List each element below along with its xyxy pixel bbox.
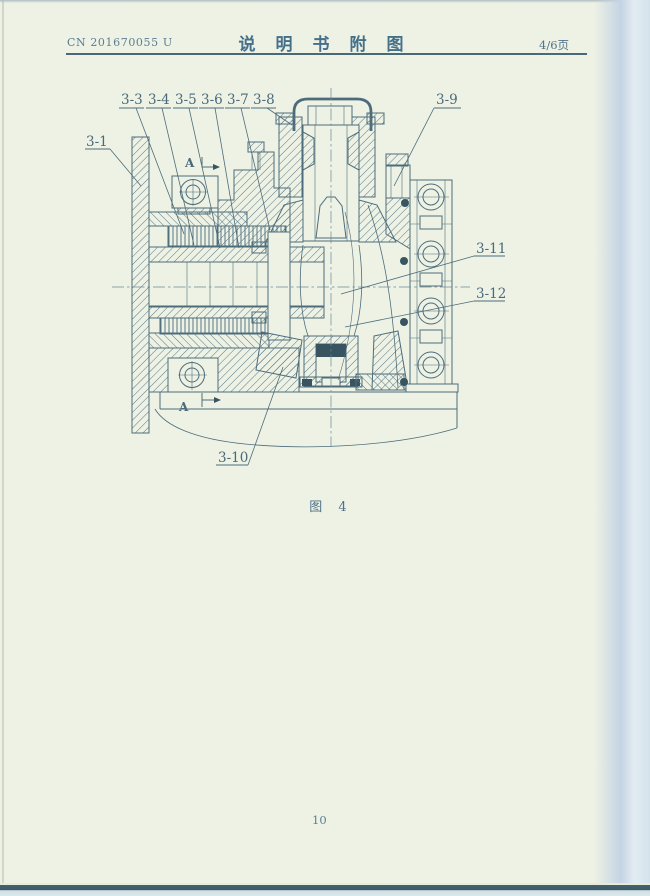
callout-label-3-8: 3-8 [253, 92, 275, 108]
figure-4-drawing: A A 3-1 3-3 3-4 3-5 3-6 [0, 0, 650, 896]
callout-label-3-4: 3-4 [148, 92, 170, 108]
section-letter-top: A [184, 156, 195, 170]
callout-label-3-12: 3-12 [476, 286, 506, 302]
section-mark-bottom: A [178, 393, 221, 414]
callout-label-3-9: 3-9 [436, 92, 458, 108]
callout-label-3-10: 3-10 [218, 450, 248, 466]
callout-label-3-6: 3-6 [201, 92, 223, 108]
patent-page: CN 201670055 U 说明书附图 4/6页 [0, 0, 650, 896]
page-number: 10 [312, 813, 327, 827]
left-wall [132, 137, 149, 433]
section-letter-bottom: A [178, 400, 189, 414]
callout-label-3-1: 3-1 [86, 134, 108, 150]
foundation-base [150, 392, 458, 447]
callout-label-3-3: 3-3 [121, 92, 143, 108]
callout-label-3-7: 3-7 [227, 92, 249, 108]
callout-label-3-5: 3-5 [175, 92, 197, 108]
figure-caption: 图 4 [309, 496, 352, 515]
callout-label-3-11: 3-11 [476, 241, 506, 257]
